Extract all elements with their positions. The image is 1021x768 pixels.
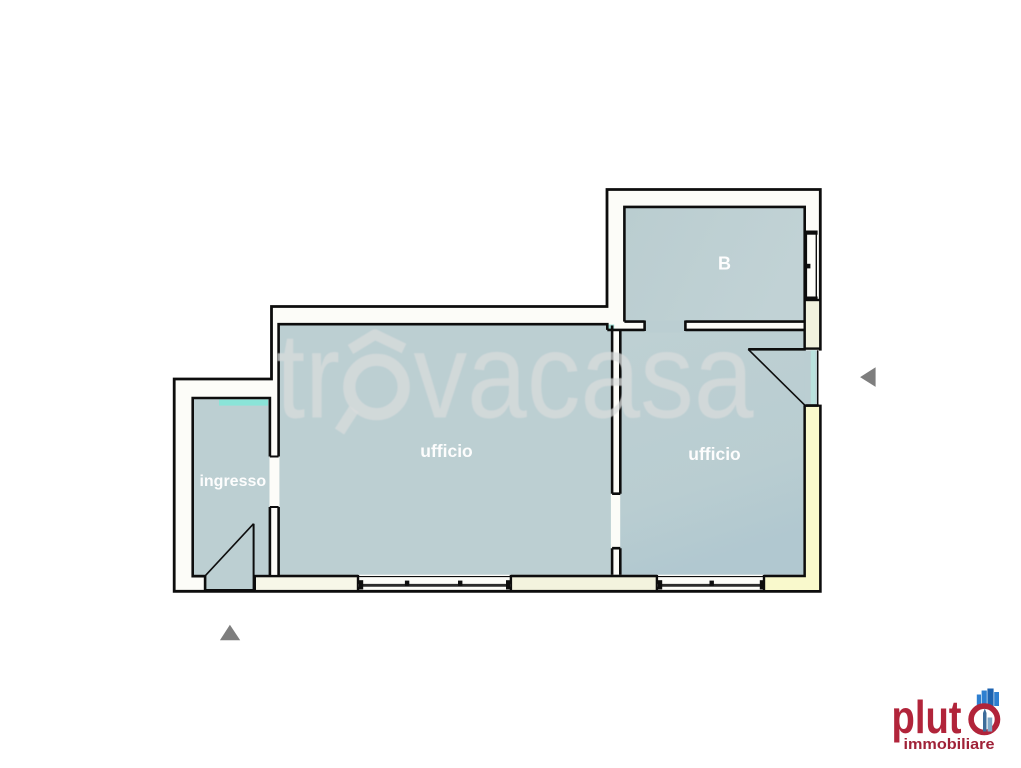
svg-text:ufficio: ufficio	[688, 444, 741, 464]
svg-text:immobiliare: immobiliare	[904, 736, 995, 753]
svg-text:tr: tr	[276, 308, 340, 444]
svg-text:ufficio: ufficio	[420, 441, 473, 461]
svg-text:B: B	[718, 254, 731, 274]
svg-text:vacasa: vacasa	[414, 308, 754, 444]
svg-text:ingresso: ingresso	[199, 473, 266, 490]
